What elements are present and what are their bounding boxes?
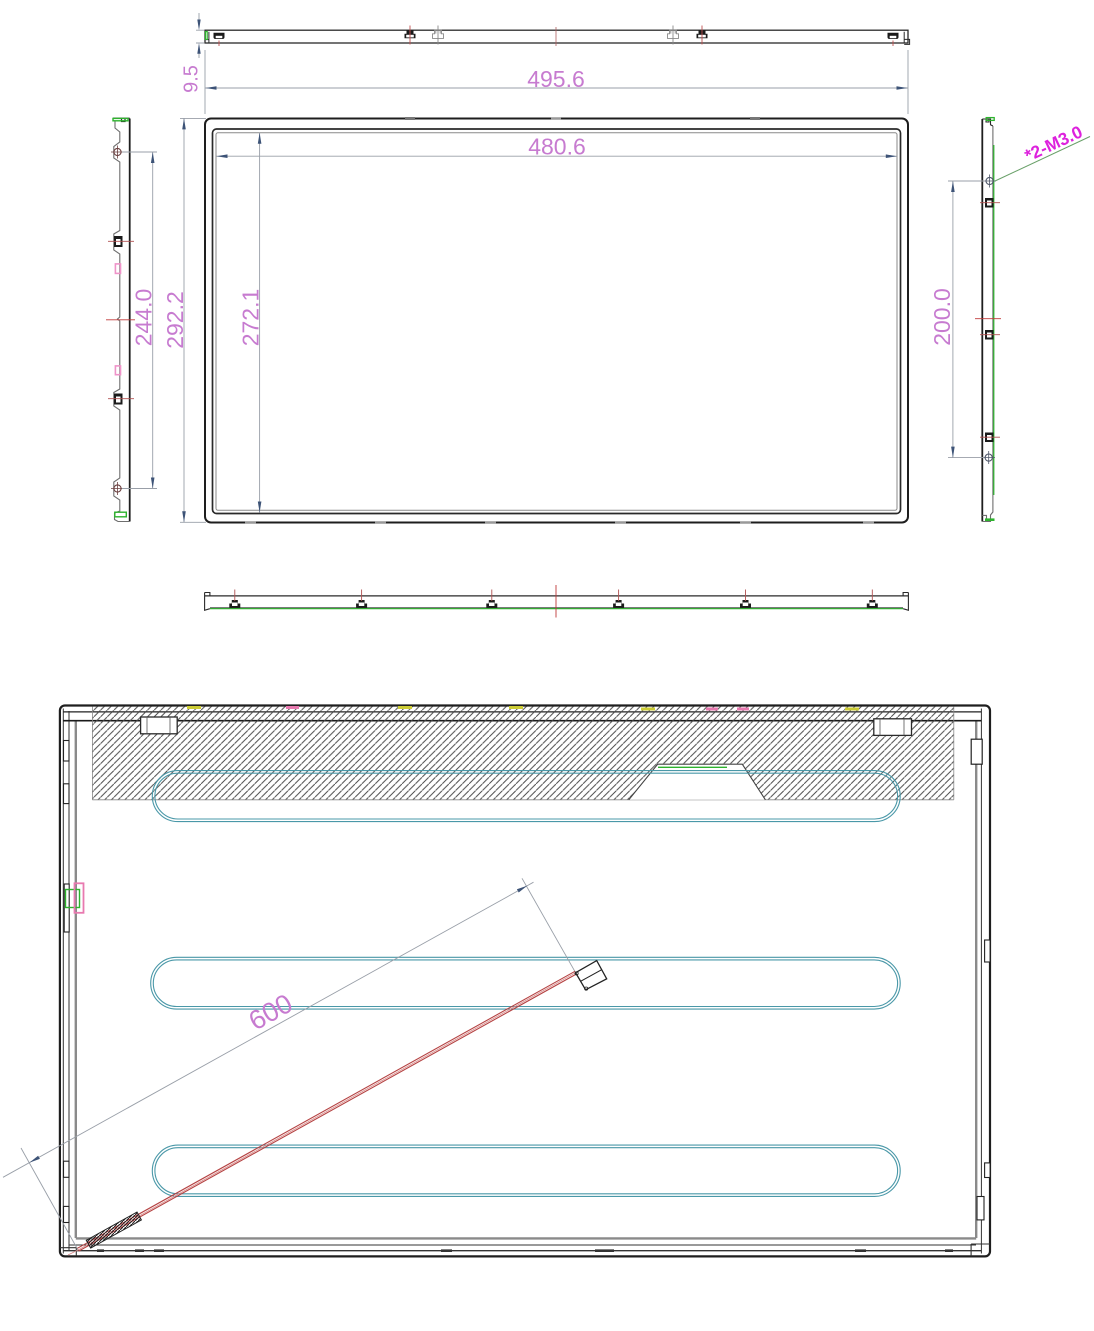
svg-text:272.1: 272.1 — [238, 289, 264, 347]
svg-text:9.5: 9.5 — [181, 65, 203, 93]
svg-text:292.2: 292.2 — [162, 291, 188, 349]
svg-text:480.6: 480.6 — [528, 134, 586, 160]
svg-text:244.0: 244.0 — [131, 289, 157, 347]
svg-text:200.0: 200.0 — [929, 288, 955, 346]
svg-text:495.6: 495.6 — [527, 66, 585, 92]
